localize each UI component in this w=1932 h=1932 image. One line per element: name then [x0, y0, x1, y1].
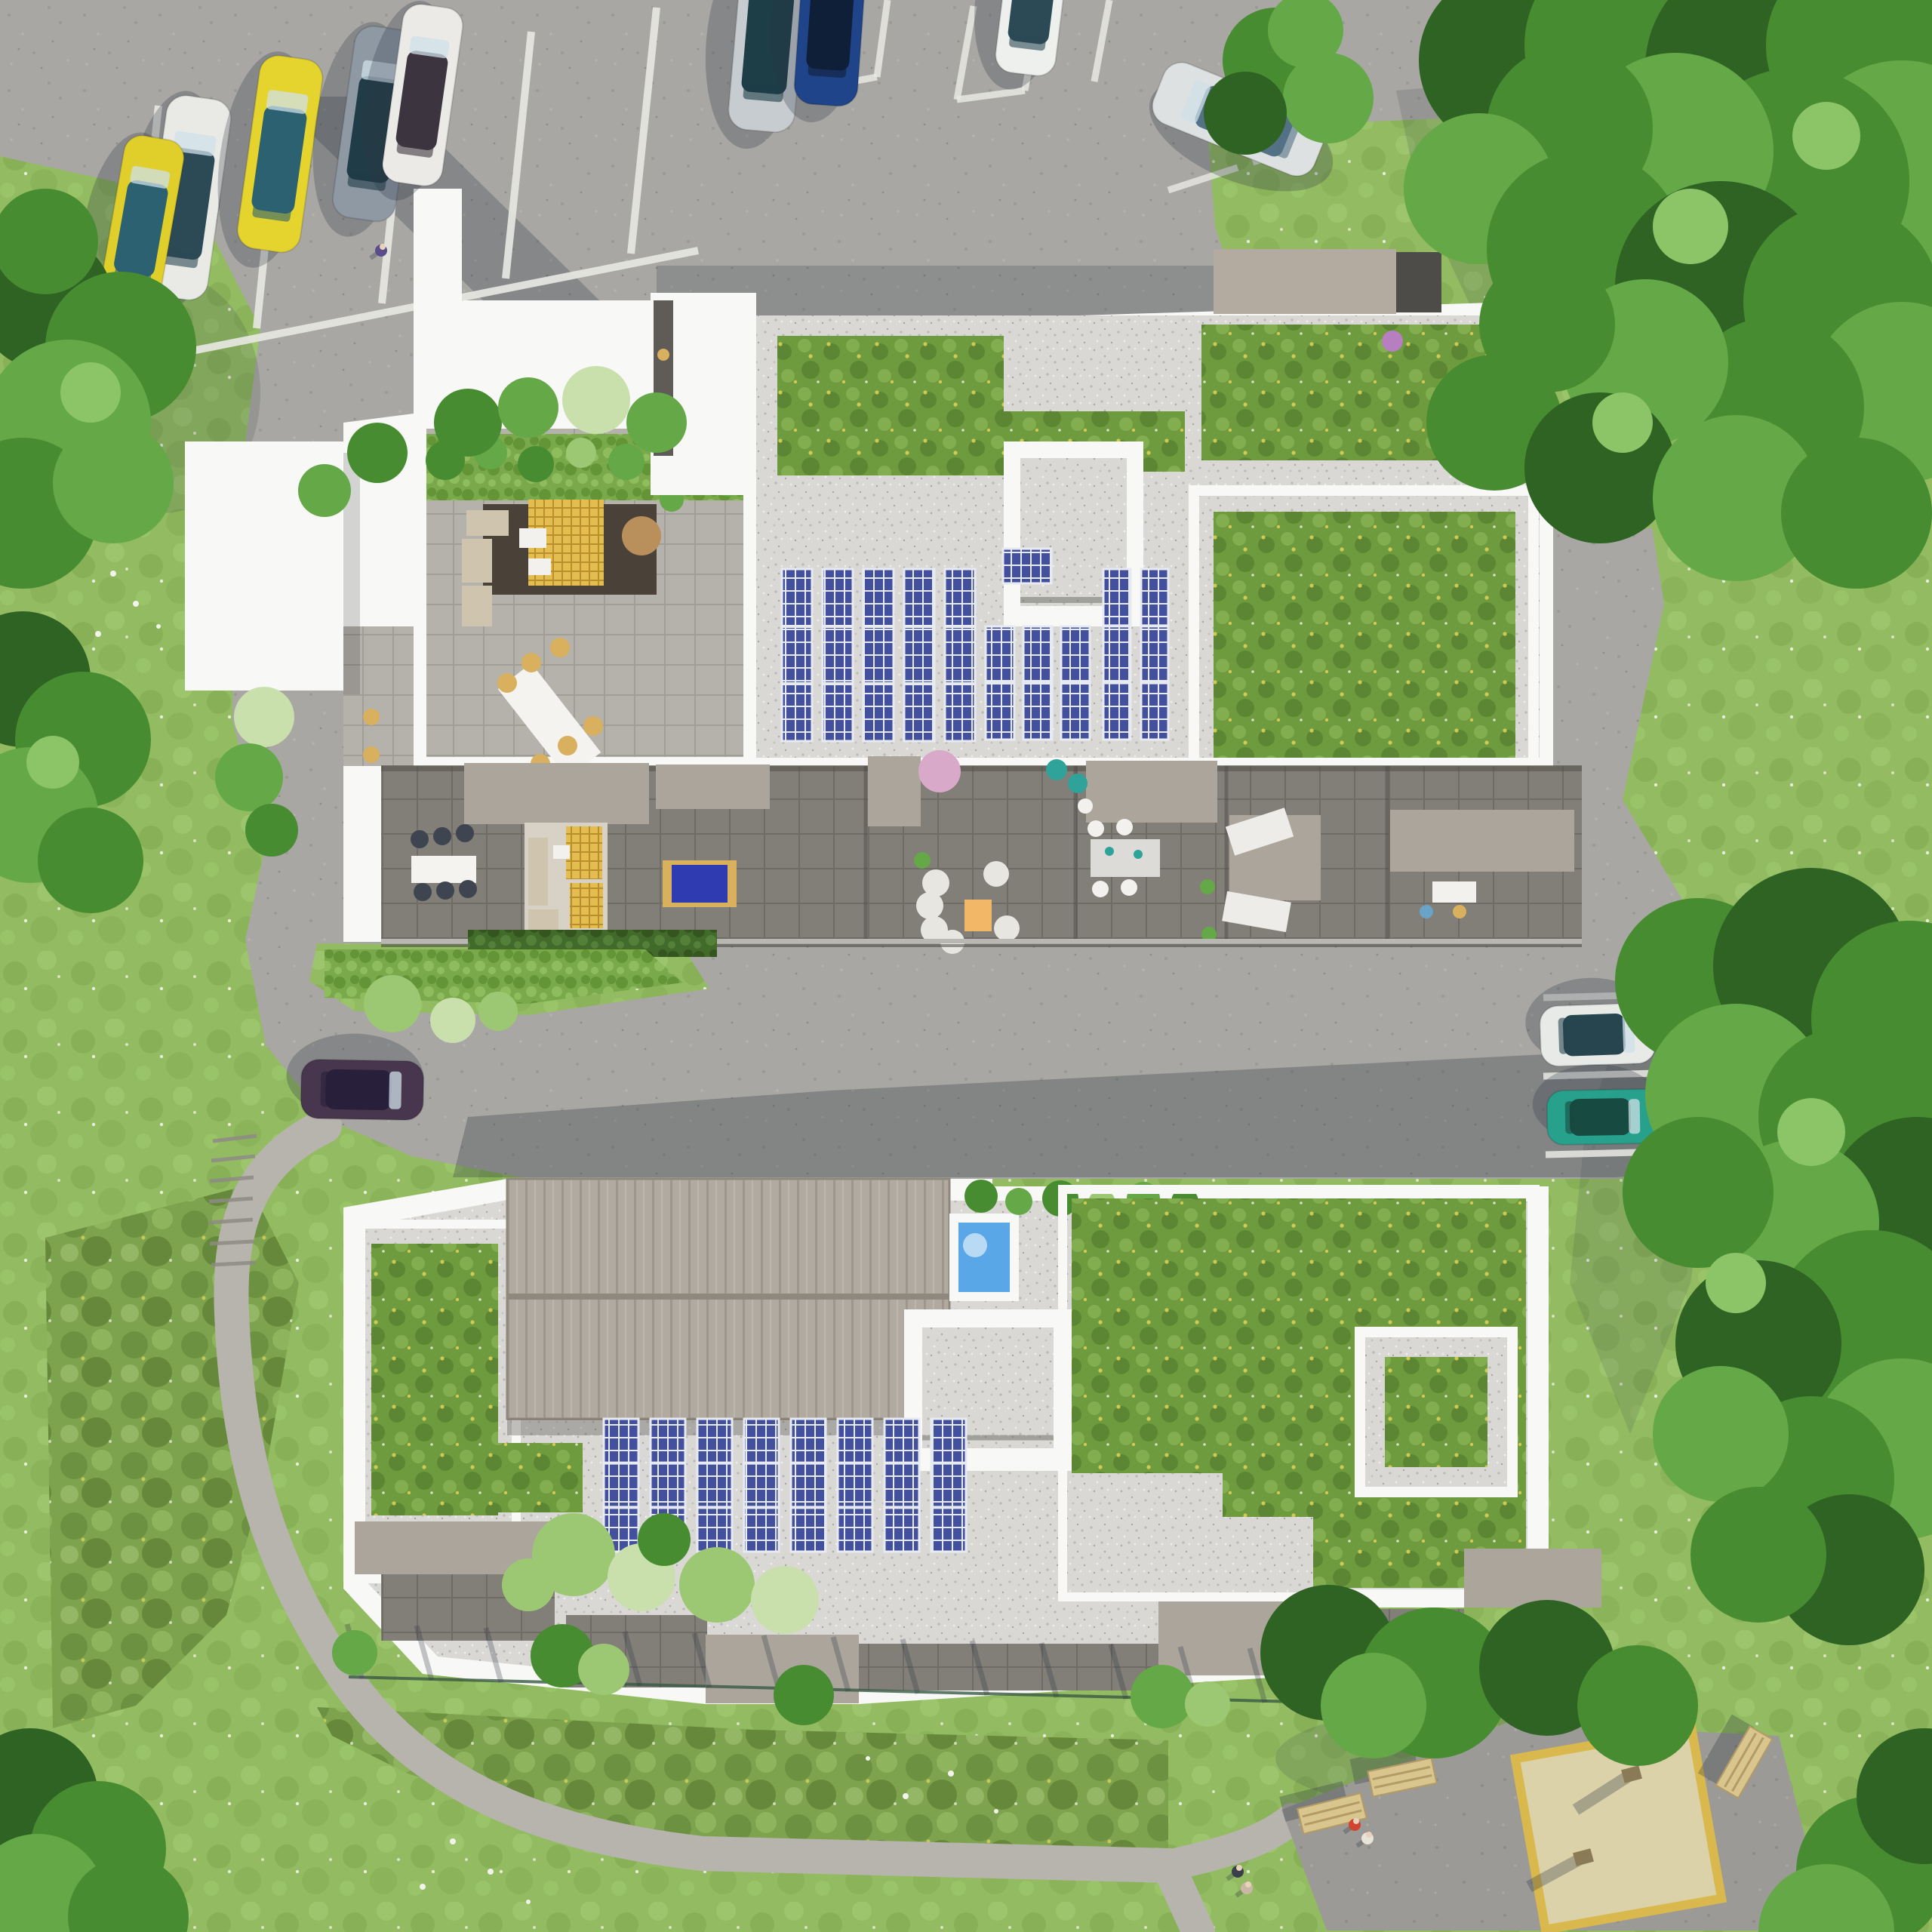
terrace-band-west-wall — [343, 766, 381, 942]
entry-wall — [414, 189, 462, 318]
penthouse-side-table — [528, 558, 551, 575]
solar-panel-small — [1003, 549, 1051, 583]
apartment-sofa-seat — [528, 909, 558, 931]
shed-flowers — [1382, 331, 1403, 352]
aerial-site-plan — [0, 0, 1932, 1932]
terrace-canopy-3 — [1086, 761, 1217, 823]
penthouse-coffee-table — [519, 528, 546, 548]
penthouse-rattan-table — [622, 516, 661, 555]
terrace-canopy-5 — [1390, 810, 1574, 872]
skylight-blue — [958, 1223, 1010, 1292]
skylight-blue-reflection — [963, 1233, 987, 1257]
apartment-rug-2 — [570, 883, 603, 928]
aerial-svg — [0, 0, 1932, 1932]
terrace-canopy-2 — [868, 756, 921, 826]
apartment-rug-1 — [566, 826, 602, 879]
solar-array-upper — [782, 569, 1168, 741]
shed-terrace — [1396, 252, 1441, 312]
terrace-lamp-table — [964, 900, 992, 931]
penthouse-sofa-1 — [466, 510, 509, 536]
terrace-canopy-1b — [656, 764, 770, 809]
terrace-canopy-1 — [464, 763, 649, 824]
green-roof-top-center — [777, 336, 1004, 475]
penthouse-sofa-3 — [462, 586, 492, 626]
lounger-blue — [672, 865, 728, 903]
terrace-pink-shrub — [918, 750, 961, 792]
terrace-e-table — [1432, 881, 1476, 903]
lower-canopy-4 — [1464, 1549, 1601, 1607]
apartment-table — [553, 845, 570, 859]
green-roof-east — [1214, 512, 1515, 761]
penthouse-sofa-2 — [462, 539, 492, 583]
apartment-sofa — [528, 838, 548, 906]
terrace-dining-b-table — [1091, 839, 1160, 877]
shed-roof — [1214, 249, 1396, 314]
green-roof-inner-core — [1385, 1357, 1487, 1467]
green-roof-sw-ext — [498, 1443, 583, 1512]
terrace-dining-a-table — [411, 856, 476, 883]
green-roof-sw — [371, 1244, 498, 1515]
